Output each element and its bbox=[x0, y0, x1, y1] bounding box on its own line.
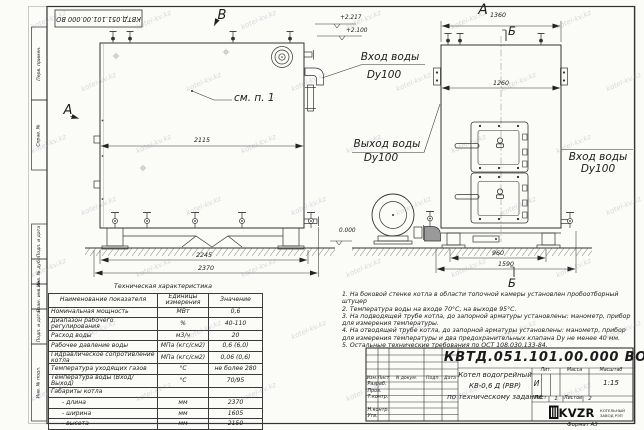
margin-label-box: Инв. № подл. bbox=[32, 344, 48, 421]
spec-cell: Диапазон рабочего регулирования bbox=[49, 318, 158, 331]
margin-label-box: Взам. инв. № bbox=[32, 284, 48, 309]
spec-header-cell: Значение bbox=[209, 294, 263, 308]
spec-cell: Расход воды bbox=[49, 330, 158, 341]
spec-table: Наименование показателяЕдиницы измерения… bbox=[48, 293, 263, 430]
scale-value: 1:15 bbox=[603, 380, 619, 387]
spec-cell: Габариты котла bbox=[49, 387, 158, 398]
spec-cell: Гидравлическое сопротивление котла bbox=[49, 351, 158, 364]
technical-note: 4. На отводящей трубе котла, до запорной… bbox=[342, 327, 635, 342]
dim-front-inner: 1260 bbox=[493, 81, 509, 87]
lit-label: Лит. bbox=[540, 369, 551, 374]
sheet-label: Лист bbox=[534, 397, 546, 402]
spec-cell: МПа (кгс/см2) bbox=[158, 341, 209, 352]
spec-cell: не более 280 bbox=[209, 364, 263, 375]
spec-cell: МВт bbox=[158, 307, 209, 318]
spec-header-cell: Наименование показателя bbox=[49, 294, 158, 308]
spec-cell: °С bbox=[158, 375, 209, 388]
lit-value: И bbox=[534, 380, 540, 388]
technical-note: 3. На подводящей трубе котла, до запорно… bbox=[342, 313, 635, 328]
title-block-label: N докум. bbox=[396, 377, 417, 382]
spec-cell: м3/ч bbox=[158, 330, 209, 341]
margin-label: Взам. инв. № bbox=[37, 281, 42, 312]
sheet-value: 1 bbox=[554, 397, 558, 403]
dim-side-overall: 2370 bbox=[198, 266, 214, 272]
spec-cell: 20 bbox=[209, 330, 263, 341]
title-block-label: Т.контр. bbox=[368, 396, 389, 401]
spec-cell: 2150 bbox=[209, 419, 263, 430]
view-label-a-front: А bbox=[478, 3, 488, 17]
title-block-label: Дата bbox=[444, 377, 456, 382]
spec-row: - высотамм2150 bbox=[49, 419, 263, 430]
spec-cell: - длина bbox=[49, 398, 158, 409]
spec-header-cell: Единицы измерения bbox=[158, 294, 209, 308]
spec-row: - длинамм2370 bbox=[49, 398, 263, 409]
title-block-label: Утв. bbox=[368, 415, 378, 420]
technical-notes: 1. На боковой стенке котла в области топ… bbox=[342, 291, 635, 349]
label-inlet-side-dn: Dy100 bbox=[581, 164, 615, 175]
spec-cell: Номинальная мощность bbox=[49, 307, 158, 318]
spec-cell: мм bbox=[158, 419, 209, 430]
spec-row: Рабочее давление водыМПа (кгс/см2)0,6 (6… bbox=[49, 341, 263, 352]
spec-row: - ширинамм1605 bbox=[49, 408, 263, 419]
sheets-value: 2 bbox=[588, 397, 592, 403]
blueprint-page: КВТД.051.101.00.000 ВО Перв. примен.Спра… bbox=[0, 0, 644, 430]
spec-row: Температура воды (Вход/Выход)°С70/95 bbox=[49, 375, 263, 388]
spec-cell: 0,6 bbox=[209, 307, 263, 318]
sheets-label: Листов bbox=[564, 397, 582, 402]
label-inlet-side: Вход воды bbox=[569, 152, 628, 163]
view-label-b-top: В bbox=[218, 9, 227, 22]
label-outlet: Выход воды bbox=[354, 139, 421, 150]
product-name-2: КВ-0,6 Д (РВР) bbox=[469, 383, 521, 390]
title-block-label: Подп. bbox=[426, 377, 440, 382]
spec-cell: Рабочее давление воды bbox=[49, 341, 158, 352]
spec-row: Габариты котла bbox=[49, 387, 263, 398]
margin-label-box: Справ. № bbox=[32, 100, 48, 170]
margin-label-box: Перв. примен. bbox=[32, 27, 48, 100]
spec-cell: Температура воды (Вход/Выход) bbox=[49, 375, 158, 388]
spec-cell bbox=[158, 387, 209, 398]
dim-front-top: 1360 bbox=[490, 13, 506, 19]
see-item-callout: см. п. 1 bbox=[234, 93, 275, 104]
spec-cell: Температура уходящих газов bbox=[49, 364, 158, 375]
margin-label: Подп. и дата bbox=[37, 226, 42, 257]
dim-front-base: 960 bbox=[492, 251, 504, 257]
spec-cell: % bbox=[158, 318, 209, 331]
company-logo: KVZR bbox=[559, 406, 595, 420]
label-inlet-rear-dn: Dy100 bbox=[367, 70, 401, 81]
spec-cell: 40-110 bbox=[209, 318, 263, 331]
spec-cell bbox=[209, 387, 263, 398]
spec-cell: мм bbox=[158, 398, 209, 409]
dim-front-overall: 1590 bbox=[498, 262, 514, 268]
spec-cell: 0,6 (6,0) bbox=[209, 341, 263, 352]
label-outlet-dn: Dy100 bbox=[364, 153, 398, 164]
elevation-top: +2.217 bbox=[340, 16, 361, 22]
title-block-label: Н.контр. bbox=[368, 409, 389, 414]
label-inlet-rear: Вход воды bbox=[361, 52, 420, 63]
technical-note: 2. Температура воды на входе 70°С, на вы… bbox=[342, 306, 635, 313]
section-label-b-top: Б bbox=[508, 26, 516, 38]
margin-label-box: Подп. и дата bbox=[32, 309, 48, 344]
company-sub-2: ЗАВОД РЭП bbox=[600, 413, 623, 418]
elevation-ground: 0.000 bbox=[339, 229, 356, 235]
spec-row: Температура уходящих газов°Сне более 280 bbox=[49, 364, 263, 375]
scale-label: Масштаб bbox=[600, 369, 623, 374]
spec-cell: - ширина bbox=[49, 408, 158, 419]
spec-cell: - высота bbox=[49, 419, 158, 430]
spec-cell: 70/95 bbox=[209, 375, 263, 388]
spec-row: Диапазон рабочего регулирования%40-110 bbox=[49, 318, 263, 331]
spec-row: Гидравлическое сопротивление котлаМПа (к… bbox=[49, 351, 263, 364]
dim-side-top: 2115 bbox=[194, 138, 210, 144]
mass-label: Масса bbox=[567, 369, 582, 374]
spec-row: Номинальная мощностьМВт0,6 bbox=[49, 307, 263, 318]
doc-number: КВТД.051.101.00.000 ВО bbox=[444, 351, 644, 364]
technical-note: 5. Остальные технические требования по О… bbox=[342, 342, 635, 349]
spec-cell: 0,06 (0,6) bbox=[209, 351, 263, 364]
section-label-b-bottom: Б bbox=[508, 278, 516, 290]
text-layer: КВТД.051.101.00.000 ВО Перв. примен.Спра… bbox=[0, 0, 644, 430]
spec-cell: мм bbox=[158, 408, 209, 419]
margin-label: Справ. № bbox=[37, 124, 42, 146]
corner-stamp: КВТД.051.101.00.000 ВО bbox=[55, 10, 142, 27]
spec-cell: 2370 bbox=[209, 398, 263, 409]
margin-label: Перв. примен. bbox=[37, 46, 42, 81]
title-block-label: Пров. bbox=[368, 390, 382, 395]
spec-table-title: Техническая характеристика bbox=[114, 284, 212, 290]
spec-cell: °С bbox=[158, 364, 209, 375]
format-label: Формат А3 bbox=[567, 423, 598, 428]
spec-cell: 1605 bbox=[209, 408, 263, 419]
product-name-3: по техническому задание bbox=[447, 394, 543, 401]
spec-cell: МПа (кгс/см2) bbox=[158, 351, 209, 364]
margin-label: Инв. № подл. bbox=[37, 367, 42, 399]
margin-label: Подп. и дата bbox=[37, 311, 42, 342]
title-block-label: Разраб. bbox=[368, 383, 387, 388]
technical-note: 1. На боковой стенке котла в области топ… bbox=[342, 291, 635, 306]
view-label-a-side: А bbox=[64, 104, 73, 117]
dim-side-feet: 2245 bbox=[196, 253, 212, 259]
spec-row: Расход водым3/ч20 bbox=[49, 330, 263, 341]
product-name-1: Котел водогрейный bbox=[458, 372, 532, 379]
margin-label-box: Подп. и дата bbox=[32, 224, 48, 259]
elevation-nozzle: +2.100 bbox=[346, 29, 367, 35]
